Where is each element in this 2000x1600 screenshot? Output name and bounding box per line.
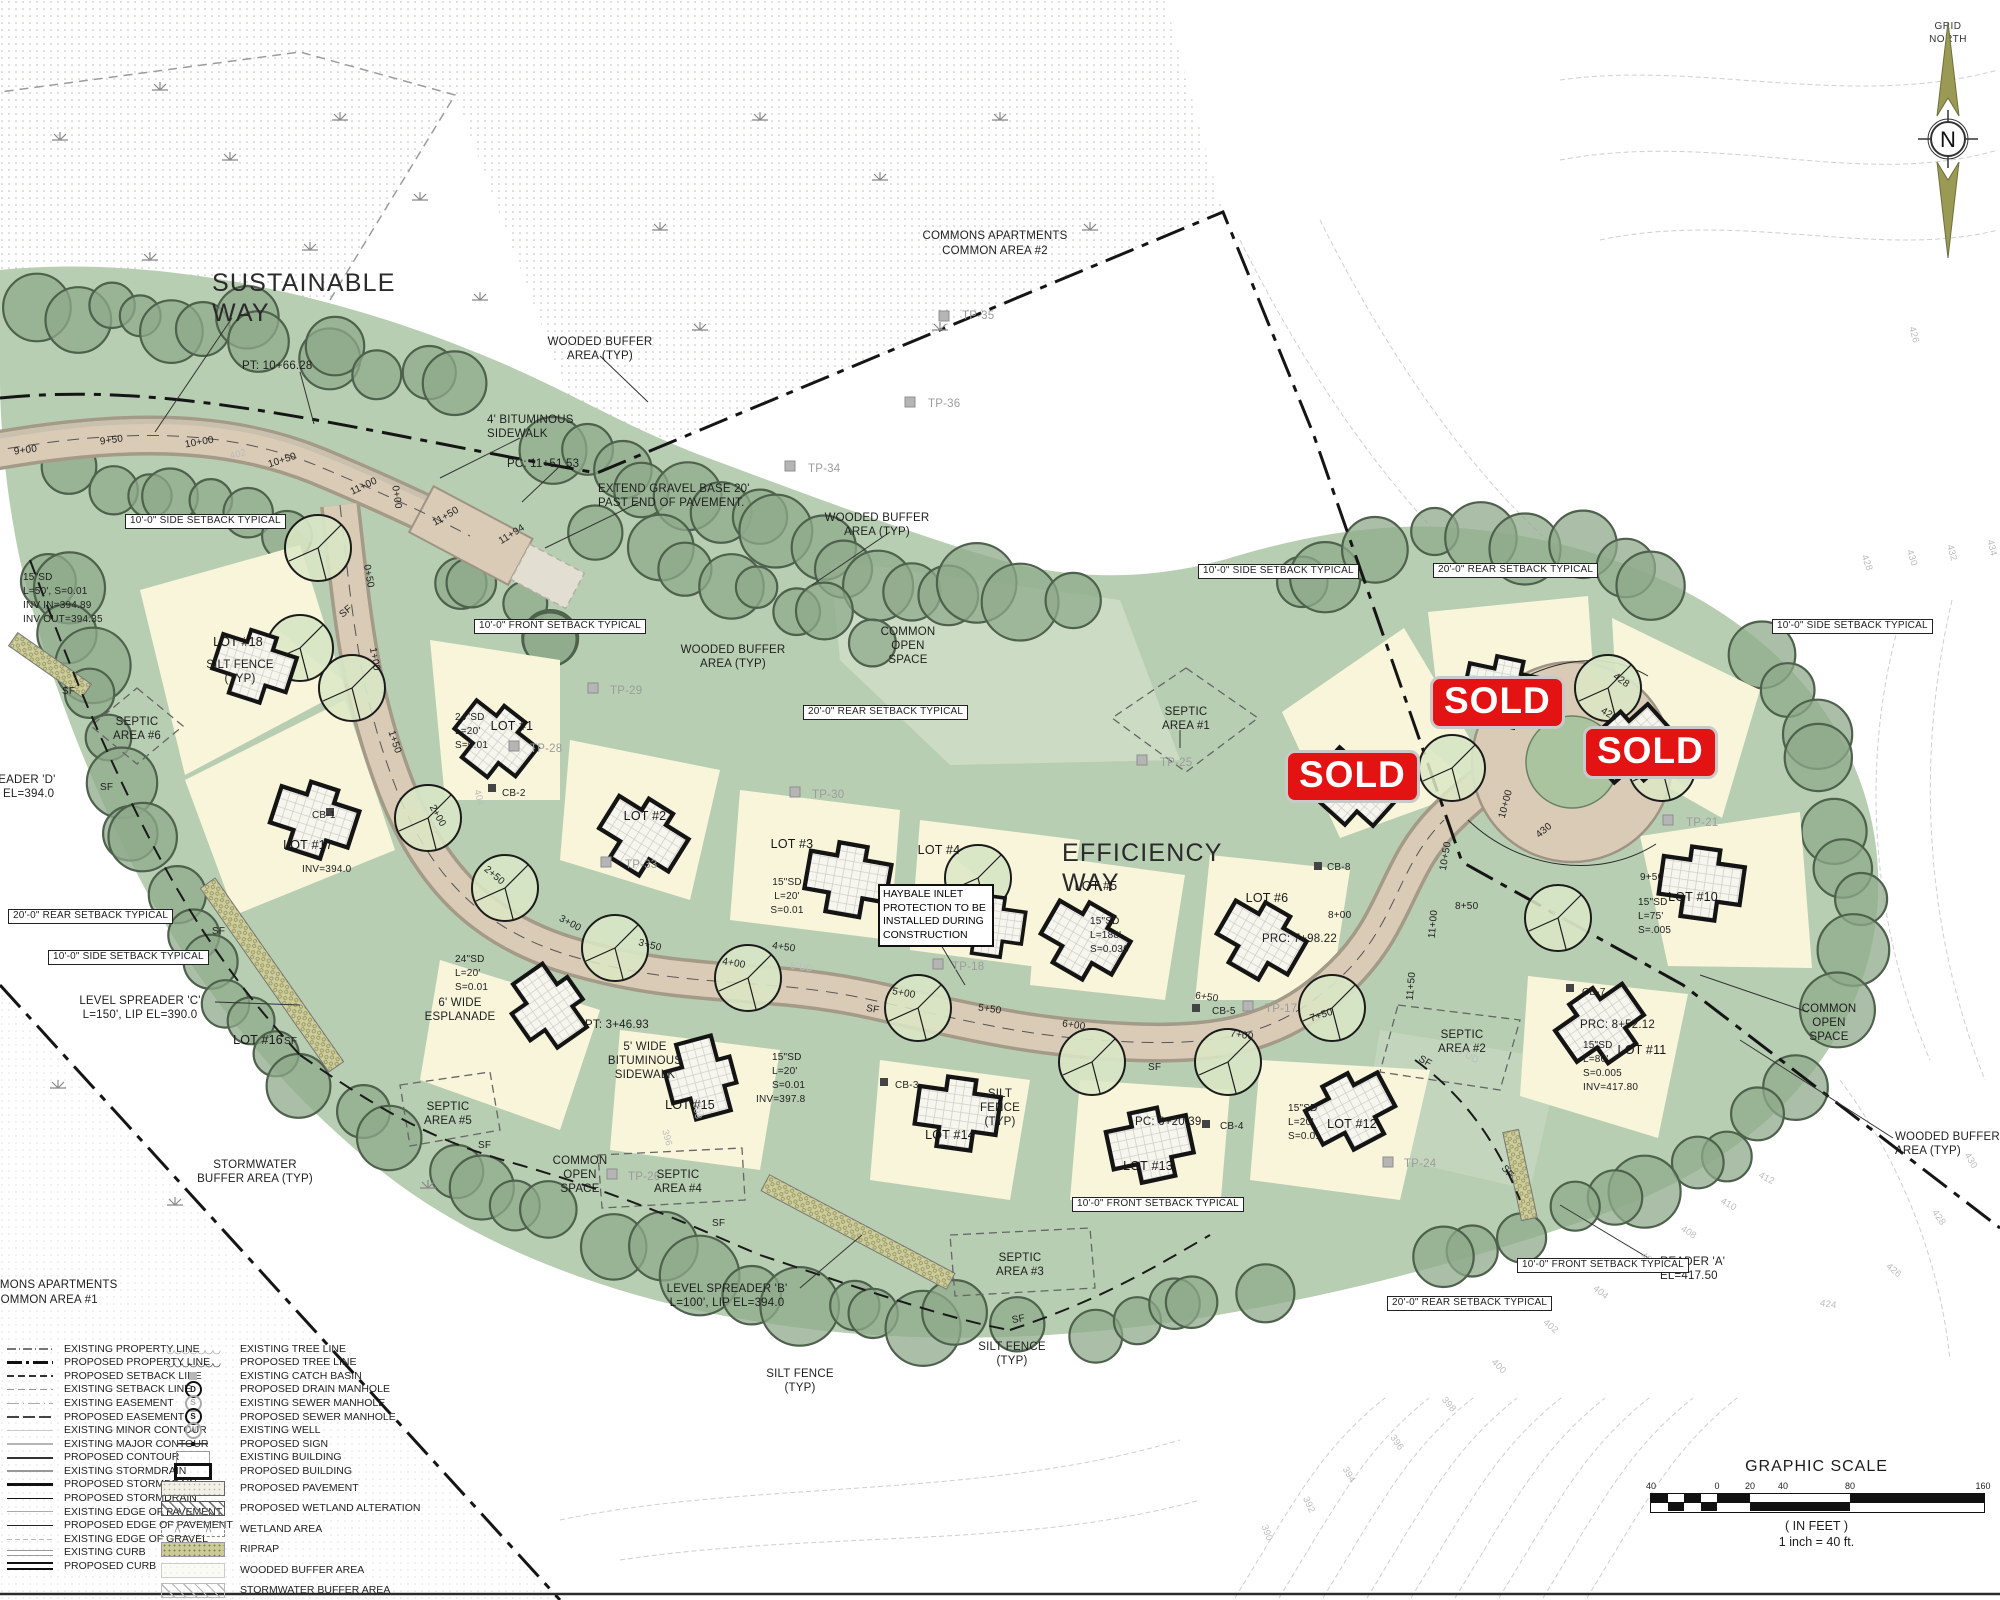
legend-symbol-icon	[161, 1501, 225, 1516]
legend-item-label: PROPOSED BUILDING	[240, 1466, 352, 1477]
contour-line	[1411, 1398, 1561, 1598]
legend-symbol-cell	[154, 1583, 232, 1598]
legend-item-label: PROPOSED DRAIN MANHOLE	[240, 1384, 390, 1395]
legend-item: EXISTING WELL	[154, 1424, 564, 1438]
legend-line-icon	[7, 1403, 53, 1404]
legend-item-label: EXISTING TREE LINE	[240, 1344, 346, 1355]
buffer-tree	[423, 351, 487, 415]
contour-line	[1499, 1398, 1649, 1598]
legend-item: PROPOSED PAVEMENT	[154, 1478, 564, 1499]
buffer-tree	[1413, 1227, 1473, 1287]
scale-tick: 20	[1745, 1481, 1755, 1491]
legend-symbol-cell	[4, 1430, 56, 1431]
legend-symbol-cell	[4, 1562, 56, 1570]
graphic-scale-title: GRAPHIC SCALE	[1650, 1458, 1983, 1476]
scale-tick: 80	[1845, 1481, 1855, 1491]
buffer-tree	[1342, 517, 1408, 583]
legend-item-label: WOODED BUFFER AREA	[240, 1565, 364, 1576]
legend-symbol-cell	[4, 1361, 56, 1364]
buffer-tree	[520, 1181, 576, 1237]
wetland-tuft-icon	[472, 292, 488, 300]
legend-symbol-cell	[4, 1511, 56, 1512]
legend-symbol-cell	[4, 1498, 56, 1500]
svg-text:N: N	[1940, 127, 1956, 152]
legend-symbol-cell	[4, 1525, 56, 1527]
buffer-tree	[736, 567, 777, 608]
legend-item-label: EXISTING CATCH BASIN	[240, 1371, 362, 1382]
legend-symbol-cell	[154, 1522, 232, 1537]
legend-item-label: EXISTING WELL	[240, 1425, 321, 1436]
legend-item-label: EXISTING SEWER MANHOLE	[240, 1398, 385, 1409]
test-pit-icon	[1243, 1001, 1253, 1011]
legend-symbol-cell	[4, 1389, 56, 1390]
buffer-tree	[796, 583, 853, 640]
legend-symbol-cell	[4, 1348, 56, 1350]
test-pit-icon	[588, 683, 598, 693]
test-pit-icon	[790, 787, 800, 797]
legend-line-icon	[7, 1511, 53, 1512]
legend-line-icon	[7, 1498, 53, 1500]
legend-symbol-icon	[161, 1481, 225, 1496]
catch-basin-icon	[488, 784, 496, 792]
legend-symbol-icon	[166, 1353, 220, 1371]
buffer-tree	[922, 1280, 987, 1345]
catch-basin-icon	[1202, 1120, 1210, 1128]
buffer-tree	[267, 1054, 331, 1118]
legend-symbol-icon	[161, 1583, 225, 1598]
test-pit-icon	[933, 959, 943, 969]
legend-line-icon	[7, 1457, 53, 1459]
buffer-tree	[228, 311, 289, 372]
legend-symbol-cell	[154, 1372, 232, 1380]
legend-line-icon	[7, 1525, 53, 1527]
test-pit-icon	[1137, 755, 1147, 765]
legend-item: RIPRAP	[154, 1539, 564, 1560]
north-arrow-icon: N	[1896, 20, 2000, 260]
legend-symbol-icon	[161, 1522, 225, 1537]
buffer-tree	[1046, 573, 1101, 628]
legend-symbol-cell	[4, 1443, 56, 1445]
legend-symbol-icon	[185, 1422, 202, 1439]
legend-item: WETLAND AREA	[154, 1519, 564, 1540]
note-line: CONSTRUCTION	[883, 929, 989, 943]
legend-item-label: PROPOSED SIGN	[240, 1439, 328, 1450]
legend-symbol-cell	[154, 1481, 232, 1496]
legend-symbol-cell	[154, 1441, 232, 1447]
catch-basin-icon	[1566, 984, 1574, 992]
buffer-tree	[1236, 1264, 1294, 1322]
site-plan-page: SUSTAINABLEWAYPT: 10+66.28WOODED BUFFERA…	[0, 0, 2000, 1600]
haybale-note-box: HAYBALE INLET PROTECTION TO BE INSTALLED…	[878, 884, 994, 947]
legend-symbol-cell	[4, 1375, 56, 1377]
legend-symbol-icon	[189, 1372, 197, 1380]
legend-symbol-cell	[4, 1470, 56, 1472]
legend-item-label: PROPOSED CURB	[64, 1561, 156, 1572]
test-pit-icon	[1383, 1157, 1393, 1167]
legend-symbol-cell	[154, 1463, 232, 1480]
catch-basin-icon	[1192, 1004, 1200, 1012]
scale-tick: 40	[1646, 1481, 1656, 1491]
note-line: HAYBALE INLET	[883, 888, 989, 902]
legend-line-icon	[7, 1550, 53, 1556]
legend-item: WOODED BUFFER AREA	[154, 1560, 564, 1581]
graphic-scale: GRAPHIC SCALE 40 0 20 40 80 160 ( IN FEE…	[1642, 1458, 2000, 1549]
test-pit-icon	[905, 397, 915, 407]
scale-tick: 0	[1714, 1481, 1719, 1491]
legend-symbol-cell	[154, 1353, 232, 1371]
north-arrow: N GRID NORTH	[1896, 20, 2000, 46]
legend-item-label: EXISTING CURB	[64, 1547, 146, 1558]
test-pit-icon	[509, 741, 519, 751]
scale-tick: 40	[1778, 1481, 1788, 1491]
legend-symbol-cell	[154, 1563, 232, 1578]
buffer-tree	[1731, 1088, 1784, 1141]
catch-basin-icon	[1314, 862, 1322, 870]
scale-tick: 160	[1975, 1481, 1990, 1491]
test-pit-icon	[939, 311, 949, 321]
contour-line	[1279, 1398, 1429, 1598]
legend-symbol-cell	[154, 1501, 232, 1516]
legend-symbol-cell	[154, 1542, 232, 1557]
legend-symbol-cell	[4, 1539, 56, 1540]
catch-basin-icon	[326, 808, 334, 816]
buffer-tree	[109, 803, 177, 871]
test-pit-icon	[1663, 815, 1673, 825]
contour-line	[1367, 1398, 1517, 1598]
legend-symbol-cell	[4, 1457, 56, 1459]
legend-item-label: PROPOSED PAVEMENT	[240, 1483, 359, 1494]
scale-ratio-note: 1 inch = 40 ft.	[1650, 1535, 1983, 1549]
legend-item-label: STORMWATER BUFFER AREA	[240, 1585, 390, 1596]
legend-line-icon	[7, 1430, 53, 1431]
legend-symbol-cell	[154, 1422, 232, 1439]
legend-line-icon	[7, 1539, 53, 1540]
catch-basin-icon	[880, 1078, 888, 1086]
test-pit-icon	[607, 1169, 617, 1179]
legend-item-label: PROPOSED TREE LINE	[240, 1357, 357, 1368]
legend-symbol-cell	[4, 1416, 56, 1418]
legend-column-symbols: EXISTING TREE LINE PROPOSED TREE LINE EX…	[154, 1342, 564, 1600]
legend-item-label: RIPRAP	[240, 1544, 279, 1555]
legend-symbol-cell	[4, 1550, 56, 1556]
test-pit-icon	[601, 857, 611, 867]
legend-symbol-icon	[174, 1463, 212, 1480]
legend-item-label: WETLAND AREA	[240, 1524, 322, 1535]
legend-line-icon	[7, 1416, 53, 1418]
legend-symbol-icon	[178, 1441, 208, 1447]
legend-item: STORMWATER BUFFER AREA	[154, 1580, 564, 1600]
note-line: PROTECTION TO BE	[883, 902, 989, 916]
buffer-tree	[352, 350, 401, 399]
contour-line	[1235, 1398, 1385, 1598]
buffer-tree	[849, 620, 896, 667]
legend-line-icon	[7, 1389, 53, 1390]
wetland-tuft-icon	[412, 192, 428, 200]
buffer-tree	[760, 1267, 839, 1346]
buffer-tree	[1800, 973, 1875, 1048]
legend-item-label: PROPOSED WETLAND ALTERATION	[240, 1503, 420, 1514]
legend-line-icon	[7, 1348, 53, 1350]
legend-line-icon	[7, 1375, 53, 1377]
legend-symbol-icon	[161, 1563, 225, 1578]
scale-bar: 40 0 20 40 80 160	[1650, 1493, 1985, 1513]
contour-line	[1455, 1398, 1605, 1598]
buffer-tree	[1166, 1277, 1217, 1328]
legend-item: PROPOSED SIGN	[154, 1437, 564, 1451]
legend-line-icon	[7, 1562, 53, 1570]
buffer-tree	[990, 1297, 1044, 1351]
legend-item-label: EXISTING BUILDING	[240, 1452, 342, 1463]
contour-line	[1323, 1398, 1473, 1598]
legend-line-icon	[7, 1361, 53, 1364]
legend-line-icon	[7, 1470, 53, 1472]
legend-symbol-icon	[161, 1542, 225, 1557]
buffer-tree	[1551, 1182, 1600, 1231]
buffer-tree	[1785, 724, 1852, 791]
legend-symbol-cell	[4, 1483, 56, 1487]
buffer-tree	[357, 1106, 421, 1170]
legend-line-icon	[7, 1443, 53, 1445]
legend-item: PROPOSED TREE LINE	[154, 1356, 564, 1370]
buffer-tree	[1617, 552, 1685, 620]
note-line: INSTALLED DURING	[883, 915, 989, 929]
legend-line-icon	[7, 1483, 53, 1487]
legend-symbol-cell	[4, 1403, 56, 1404]
legend-item: PROPOSED BUILDING	[154, 1464, 564, 1478]
test-pit-icon	[785, 461, 795, 471]
legend-item-label: PROPOSED SEWER MANHOLE	[240, 1412, 396, 1423]
legend-item: PROPOSED WETLAND ALTERATION	[154, 1498, 564, 1519]
scale-units-note: ( IN FEET )	[1650, 1519, 1983, 1533]
